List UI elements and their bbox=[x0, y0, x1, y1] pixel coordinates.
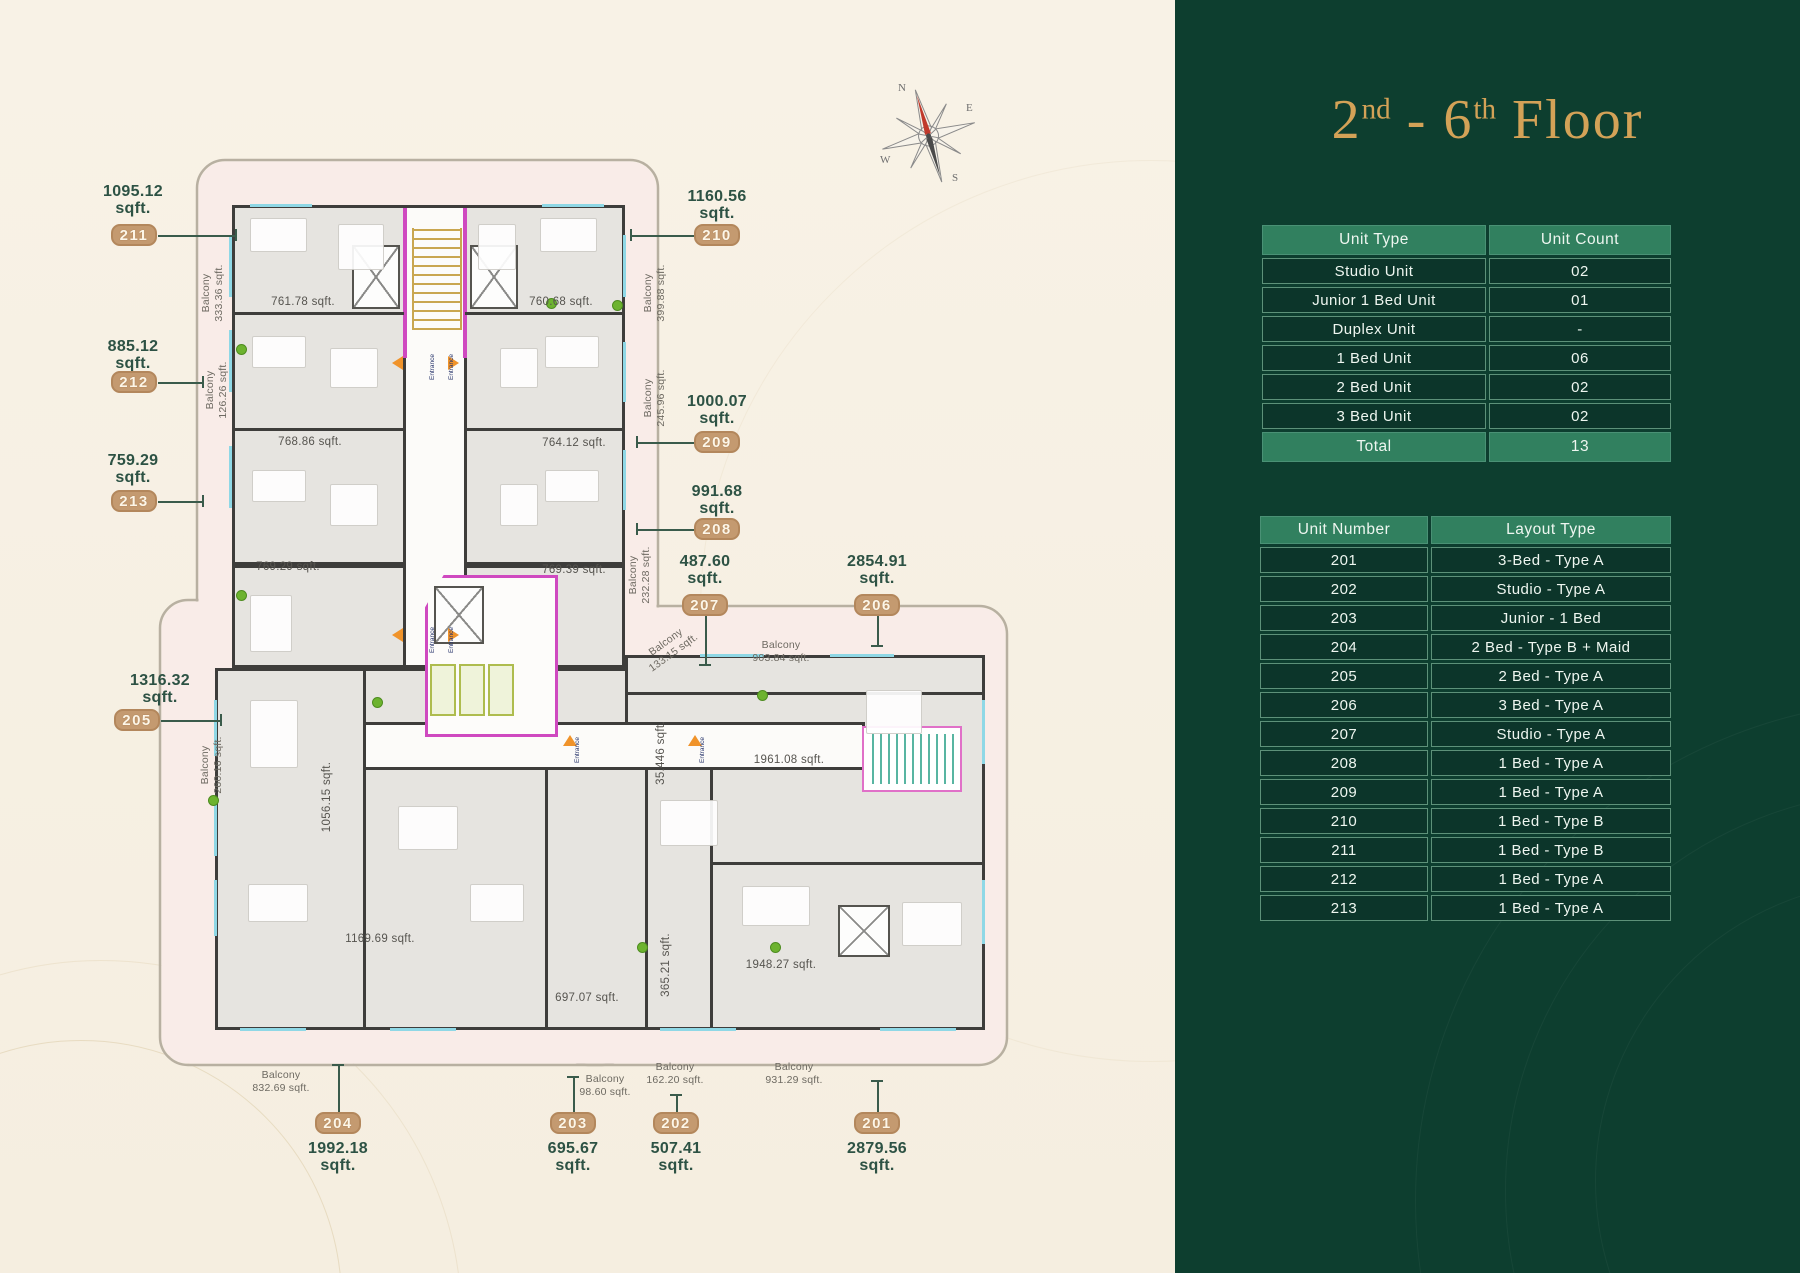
unit-badge-212: 212 bbox=[111, 371, 157, 393]
unit-badge-205: 205 bbox=[114, 709, 160, 731]
callout-leader bbox=[338, 1064, 340, 1112]
callout-area-207: 487.60 sqft. bbox=[680, 553, 731, 587]
entrance-label: Entrance bbox=[429, 354, 437, 380]
layout-row-cell: 212 bbox=[1260, 866, 1428, 892]
callout-leader-tick bbox=[630, 229, 632, 241]
callout-leader bbox=[877, 1080, 879, 1112]
window-line bbox=[623, 235, 626, 297]
shaft-box bbox=[838, 905, 890, 957]
callout-area-205: 1316.32 sqft. bbox=[130, 672, 190, 706]
unit-area-label: 35.446 sqft. bbox=[654, 721, 668, 785]
furniture-block bbox=[545, 470, 599, 502]
entrance-label: Entrance bbox=[448, 627, 456, 653]
layout-header-cell: Unit Number bbox=[1260, 516, 1428, 544]
layout-row-cell: 3 Bed - Type A bbox=[1431, 692, 1671, 718]
summary-row: 3 Bed Unit02 bbox=[1262, 403, 1671, 429]
summary-row-cell: - bbox=[1489, 316, 1671, 342]
layout-row-cell: 208 bbox=[1260, 750, 1428, 776]
balcony-area-label: Balcony 245.96 sqft. bbox=[642, 369, 668, 426]
layout-row-cell: 1 Bed - Type B bbox=[1431, 808, 1671, 834]
furniture-block bbox=[500, 484, 538, 526]
callout-leader-tick bbox=[235, 229, 237, 241]
balcony-area-label: Balcony 260.16 sqft. bbox=[199, 736, 225, 793]
summary-row-cell: 02 bbox=[1489, 258, 1671, 284]
wall bbox=[465, 428, 625, 431]
compass-rose: N E S W bbox=[878, 80, 978, 188]
layout-row: 2121 Bed - Type A bbox=[1260, 866, 1671, 892]
callout-leader-tick bbox=[202, 376, 204, 388]
callout-area-213: 759.29 sqft. bbox=[108, 452, 159, 486]
summary-row-cell: 02 bbox=[1489, 403, 1671, 429]
layout-row-cell: 2 Bed - Type B + Maid bbox=[1431, 634, 1671, 660]
compass-s: S bbox=[952, 172, 958, 184]
summary-total-row-cell: 13 bbox=[1489, 432, 1671, 462]
summary-row-cell: 02 bbox=[1489, 374, 1671, 400]
summary-row: 2 Bed Unit02 bbox=[1262, 374, 1671, 400]
furniture-block bbox=[252, 470, 306, 502]
wall bbox=[232, 312, 404, 315]
layout-row-cell: 213 bbox=[1260, 895, 1428, 921]
unit-area-label: 1056.15 sqft. bbox=[320, 762, 334, 832]
callout-leader-tick bbox=[220, 714, 222, 726]
wall bbox=[545, 770, 548, 1030]
layout-row-cell: 203 bbox=[1260, 605, 1428, 631]
layout-row: 2091 Bed - Type A bbox=[1260, 779, 1671, 805]
callout-leader-tick bbox=[567, 1076, 579, 1078]
staircase-right bbox=[862, 726, 962, 792]
furniture-block bbox=[660, 800, 718, 846]
entrance-arrow bbox=[392, 356, 403, 370]
window-line bbox=[982, 700, 985, 764]
balcony-area-label: Balcony 126.26 sqft. bbox=[204, 361, 230, 418]
plant-dot bbox=[372, 697, 383, 708]
furniture-block bbox=[545, 336, 599, 368]
layout-row: 202Studio - Type A bbox=[1260, 576, 1671, 602]
summary-total-row: Total13 bbox=[1262, 432, 1671, 462]
unit-area-label: 1948.27 sqft. bbox=[746, 958, 816, 972]
furniture-block bbox=[330, 348, 378, 388]
shaft-box bbox=[434, 586, 484, 644]
summary-row-cell: 3 Bed Unit bbox=[1262, 403, 1486, 429]
furniture-block bbox=[540, 218, 597, 252]
summary-row: Duplex Unit- bbox=[1262, 316, 1671, 342]
layout-row-cell: 1 Bed - Type A bbox=[1431, 895, 1671, 921]
furniture-block bbox=[478, 224, 516, 270]
unit-area-label: 769.39 sqft. bbox=[542, 563, 606, 577]
stair-treads bbox=[872, 734, 956, 784]
callout-area-201: 2879.56 sqft. bbox=[847, 1140, 907, 1174]
layout-row-cell: Studio - Type A bbox=[1431, 576, 1671, 602]
callout-leader bbox=[636, 529, 694, 531]
plant-dot bbox=[770, 942, 781, 953]
plant-dot bbox=[208, 795, 219, 806]
summary-row: 1 Bed Unit06 bbox=[1262, 345, 1671, 371]
layout-row-cell: 209 bbox=[1260, 779, 1428, 805]
layout-row: 207Studio - Type A bbox=[1260, 721, 1671, 747]
balcony-area-label: Balcony 399.88 sqft. bbox=[642, 264, 668, 321]
summary-row: Junior 1 Bed Unit01 bbox=[1262, 287, 1671, 313]
callout-leader-tick bbox=[332, 1064, 344, 1066]
entrance-label: Entrance bbox=[699, 737, 707, 763]
unit-area-label: 697.07 sqft. bbox=[555, 991, 619, 1005]
plant-dot bbox=[236, 344, 247, 355]
compass-w: W bbox=[880, 154, 890, 166]
furniture-block bbox=[470, 884, 524, 922]
layout-row: 2101 Bed - Type B bbox=[1260, 808, 1671, 834]
layout-row-cell: 204 bbox=[1260, 634, 1428, 660]
summary-header-cell: Unit Count bbox=[1489, 225, 1671, 255]
plant-dot bbox=[757, 690, 768, 701]
window-line bbox=[623, 342, 626, 402]
layout-row-cell: 207 bbox=[1260, 721, 1428, 747]
furniture-block bbox=[338, 224, 384, 270]
unit-badge-209: 209 bbox=[694, 431, 740, 453]
layout-header: Unit NumberLayout Type bbox=[1260, 516, 1671, 544]
unit-area-label: 764.12 sqft. bbox=[542, 436, 606, 450]
layout-header-cell: Layout Type bbox=[1431, 516, 1671, 544]
entrance-label: Entrance bbox=[574, 737, 582, 763]
furniture-block bbox=[250, 218, 307, 252]
staircase bbox=[412, 228, 462, 330]
elevator-strip bbox=[463, 208, 467, 358]
furniture-block bbox=[252, 336, 306, 368]
layout-row-cell: 210 bbox=[1260, 808, 1428, 834]
layout-row-cell: 3-Bed - Type A bbox=[1431, 547, 1671, 573]
callout-leader-tick bbox=[636, 523, 638, 535]
callout-leader bbox=[630, 235, 694, 237]
callout-area-209: 1000.07 sqft. bbox=[687, 393, 747, 427]
window-line bbox=[542, 204, 604, 207]
unit-area-label: 769.29 sqft. bbox=[256, 560, 320, 574]
unit-area-label: 768.86 sqft. bbox=[278, 435, 342, 449]
page-title: 2nd - 6th Floor bbox=[1175, 88, 1800, 152]
layout-row-cell: 1 Bed - Type A bbox=[1431, 866, 1671, 892]
layout-row-cell: Studio - Type A bbox=[1431, 721, 1671, 747]
wall bbox=[645, 770, 648, 1030]
callout-leader bbox=[573, 1076, 575, 1112]
plant-dot bbox=[612, 300, 623, 311]
summary-row-cell: 06 bbox=[1489, 345, 1671, 371]
unit-layout-table: Unit NumberLayout Type2013-Bed - Type A2… bbox=[1260, 516, 1671, 924]
callout-area-208: 991.68 sqft. bbox=[692, 483, 743, 517]
summary-header-cell: Unit Type bbox=[1262, 225, 1486, 255]
window-line bbox=[229, 235, 232, 297]
compass-n: N bbox=[898, 82, 906, 94]
unit-area-label: 365.21 sqft. bbox=[659, 933, 673, 997]
summary-total-row-cell: Total bbox=[1262, 432, 1486, 462]
callout-leader bbox=[158, 382, 202, 384]
wall bbox=[625, 695, 628, 725]
compass-e: E bbox=[966, 102, 973, 114]
lift-cab bbox=[459, 664, 485, 716]
layout-row: 2111 Bed - Type B bbox=[1260, 837, 1671, 863]
layout-row-cell: 2 Bed - Type A bbox=[1431, 663, 1671, 689]
layout-row-cell: 1 Bed - Type A bbox=[1431, 779, 1671, 805]
entrance-label: Entrance bbox=[448, 354, 456, 380]
summary-row-cell: 01 bbox=[1489, 287, 1671, 313]
balcony-area-label: Balcony 903.84 sqft. bbox=[752, 639, 809, 665]
callout-leader bbox=[705, 616, 707, 664]
summary-row-cell: Studio Unit bbox=[1262, 258, 1486, 284]
furniture-block bbox=[250, 700, 298, 768]
lift-cab bbox=[488, 664, 514, 716]
summary-row-cell: 2 Bed Unit bbox=[1262, 374, 1486, 400]
callout-leader-tick bbox=[636, 436, 638, 448]
window-line bbox=[250, 204, 312, 207]
callout-leader bbox=[676, 1094, 678, 1112]
callout-leader-tick bbox=[871, 1080, 883, 1082]
entrance-label: Entrance bbox=[429, 627, 437, 653]
furniture-block bbox=[866, 690, 922, 734]
callout-area-211: 1095.12 sqft. bbox=[103, 183, 163, 217]
layout-row: 2042 Bed - Type B + Maid bbox=[1260, 634, 1671, 660]
balcony-area-label: Balcony 162.20 sqft. bbox=[646, 1061, 703, 1087]
layout-row: 2131 Bed - Type A bbox=[1260, 895, 1671, 921]
unit-badge-210: 210 bbox=[694, 224, 740, 246]
window-line bbox=[830, 654, 894, 657]
layout-row: 2013-Bed - Type A bbox=[1260, 547, 1671, 573]
wall bbox=[363, 668, 366, 1030]
layout-row-cell: 1 Bed - Type A bbox=[1431, 750, 1671, 776]
unit-area-label: 1169.69 sqft. bbox=[345, 932, 415, 946]
callout-leader-tick bbox=[202, 495, 204, 507]
window-line bbox=[982, 880, 985, 944]
unit-badge-202: 202 bbox=[653, 1112, 699, 1134]
callout-area-210: 1160.56 sqft. bbox=[687, 188, 746, 222]
layout-row-cell: 206 bbox=[1260, 692, 1428, 718]
info-panel: 2nd - 6th Floor Unit TypeUnit CountStudi… bbox=[1175, 0, 1800, 1273]
callout-leader bbox=[158, 235, 235, 237]
callout-area-202: 507.41 sqft. bbox=[651, 1140, 702, 1174]
unit-area-label: 760.68 sqft. bbox=[529, 295, 593, 309]
wall bbox=[710, 862, 985, 865]
callout-area-203: 695.67 sqft. bbox=[548, 1140, 599, 1174]
layout-row-cell: 202 bbox=[1260, 576, 1428, 602]
summary-row: Studio Unit02 bbox=[1262, 258, 1671, 284]
furniture-block bbox=[398, 806, 458, 850]
unit-area-label: 761.78 sqft. bbox=[271, 295, 335, 309]
layout-row: 2063 Bed - Type A bbox=[1260, 692, 1671, 718]
window-line bbox=[880, 1028, 956, 1031]
unit-badge-208: 208 bbox=[694, 518, 740, 540]
layout-row-cell: 205 bbox=[1260, 663, 1428, 689]
window-line bbox=[214, 800, 217, 856]
balcony-area-label: Balcony 832.69 sqft. bbox=[252, 1069, 309, 1095]
entrance-arrow bbox=[392, 628, 403, 642]
balcony-area-label: Balcony 232.28 sqft. bbox=[627, 546, 653, 603]
wall bbox=[232, 428, 404, 431]
unit-badge-213: 213 bbox=[111, 490, 157, 512]
plant-dot bbox=[236, 590, 247, 601]
window-line bbox=[240, 1028, 306, 1031]
elevator-strip bbox=[403, 208, 407, 358]
window-line bbox=[229, 446, 232, 508]
plant-dot bbox=[637, 942, 648, 953]
floorplan-page: 761.78 sqft.760.68 sqft.768.86 sqft.764.… bbox=[0, 0, 1800, 1273]
unit-badge-211: 211 bbox=[111, 224, 157, 246]
layout-row-cell: Junior - 1 Bed bbox=[1431, 605, 1671, 631]
unit-summary-table: Unit TypeUnit CountStudio Unit02Junior 1… bbox=[1262, 225, 1671, 465]
unit-area-label: 1961.08 sqft. bbox=[754, 753, 824, 767]
callout-leader-tick bbox=[699, 664, 711, 666]
layout-row: 2081 Bed - Type A bbox=[1260, 750, 1671, 776]
lift-cab bbox=[430, 664, 456, 716]
layout-row: 2052 Bed - Type A bbox=[1260, 663, 1671, 689]
callout-leader-tick bbox=[871, 645, 883, 647]
callout-leader-tick bbox=[670, 1094, 682, 1096]
window-line bbox=[390, 1028, 456, 1031]
layout-row: 203Junior - 1 Bed bbox=[1260, 605, 1671, 631]
summary-row-cell: Junior 1 Bed Unit bbox=[1262, 287, 1486, 313]
callout-area-206: 2854.91 sqft. bbox=[847, 553, 907, 587]
furniture-block bbox=[250, 595, 292, 652]
callout-leader bbox=[636, 442, 694, 444]
furniture-block bbox=[500, 348, 538, 388]
layout-row-cell: 201 bbox=[1260, 547, 1428, 573]
callout-area-204: 1992.18 sqft. bbox=[308, 1140, 368, 1174]
layout-row-cell: 211 bbox=[1260, 837, 1428, 863]
summary-row-cell: 1 Bed Unit bbox=[1262, 345, 1486, 371]
callout-leader bbox=[161, 720, 220, 722]
callout-leader bbox=[158, 501, 202, 503]
unit-badge-201: 201 bbox=[854, 1112, 900, 1134]
summary-row-cell: Duplex Unit bbox=[1262, 316, 1486, 342]
window-line bbox=[660, 1028, 736, 1031]
balcony-area-label: Balcony 98.60 sqft. bbox=[579, 1073, 630, 1099]
callout-leader bbox=[877, 616, 879, 645]
furniture-block bbox=[902, 902, 962, 946]
wall bbox=[465, 312, 625, 315]
unit-badge-207: 207 bbox=[682, 594, 728, 616]
unit-badge-204: 204 bbox=[315, 1112, 361, 1134]
layout-row-cell: 1 Bed - Type B bbox=[1431, 837, 1671, 863]
unit-badge-203: 203 bbox=[550, 1112, 596, 1134]
unit-badge-206: 206 bbox=[854, 594, 900, 616]
furniture-block bbox=[248, 884, 308, 922]
summary-header: Unit TypeUnit Count bbox=[1262, 225, 1671, 255]
callout-area-212: 885.12 sqft. bbox=[108, 338, 159, 372]
furniture-block bbox=[330, 484, 378, 526]
window-line bbox=[623, 450, 626, 510]
furniture-block bbox=[742, 886, 810, 926]
balcony-area-label: Balcony 333.36 sqft. bbox=[200, 264, 226, 321]
balcony-area-label: Balcony 931.29 sqft. bbox=[765, 1061, 822, 1087]
window-line bbox=[214, 880, 217, 936]
